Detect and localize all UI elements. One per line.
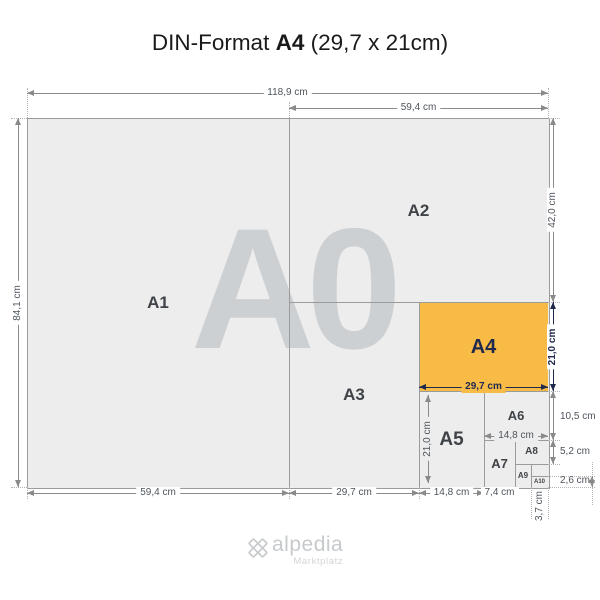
- dim-label: 21,0 cm: [547, 324, 559, 369]
- extension-line: [548, 487, 549, 519]
- format-label-a8: A8: [525, 447, 538, 457]
- dim-arrow: [550, 391, 556, 398]
- din-format-diagram: DIN-Format A4 (29,7 x 21cm) A1A2A3A4A5A6…: [0, 0, 600, 600]
- dim-arrow: [484, 433, 491, 439]
- dim-label: 59,4 cm: [397, 102, 441, 114]
- dim-label: 10,5 cm: [560, 412, 596, 422]
- extension-line: [531, 487, 532, 519]
- format-label-a4: A4: [471, 337, 497, 357]
- format-label-a10: A10: [534, 479, 545, 485]
- brand-tagline: Marktplatz: [272, 557, 343, 567]
- format-box-a8: A8: [515, 440, 548, 464]
- fold-line: [484, 391, 485, 487]
- format-box-a10: A10: [531, 476, 548, 487]
- dim-arrow: [541, 90, 548, 96]
- dim-arrow: [412, 490, 419, 496]
- dim-arrow: [289, 105, 296, 111]
- dim-arrow: [550, 295, 556, 302]
- dim-arrow: [425, 395, 431, 402]
- watermark-a0: A0: [191, 203, 394, 375]
- dim-label: 7,4 cm: [480, 487, 518, 499]
- dim-arrow: [419, 384, 426, 390]
- dim-arrow: [289, 490, 296, 496]
- extension-line: [548, 464, 560, 465]
- format-box-a4: A4: [419, 302, 548, 391]
- dim-label: 2,6 cm: [560, 476, 590, 486]
- format-label-a5: A5: [439, 430, 463, 449]
- brand-name: alpedia: [272, 534, 343, 556]
- dim-arrow: [27, 90, 34, 96]
- dim-arrow: [550, 384, 556, 391]
- dim-label: 118,9 cm: [263, 87, 311, 99]
- fold-line: [419, 302, 420, 487]
- format-box-a9: A9: [515, 464, 531, 487]
- dim-label: 42,0 cm: [547, 188, 559, 232]
- dim-arrow: [550, 118, 556, 125]
- extension-line: [11, 487, 27, 488]
- clover-icon: [247, 537, 269, 559]
- dim-arrow: [419, 490, 426, 496]
- format-label-a1: A1: [147, 294, 169, 311]
- extension-line: [548, 88, 549, 118]
- dim-arrow: [541, 105, 548, 111]
- dim-arrow: [541, 384, 548, 390]
- dim-arrow: [550, 433, 556, 440]
- extension-line: [548, 487, 595, 488]
- dim-label: 21,0 cm: [422, 417, 434, 461]
- dim-arrow: [550, 440, 556, 447]
- dim-label: 29,7 cm: [332, 487, 376, 499]
- dim-label: 84,1 cm: [12, 281, 24, 325]
- dim-arrow: [282, 490, 289, 496]
- brand-logo: alpedia Marktplatz: [247, 534, 343, 567]
- brand-text: alpedia Marktplatz: [272, 534, 343, 567]
- dim-arrow: [541, 433, 548, 439]
- dim-arrow: [550, 302, 556, 309]
- dim-label: 14,8 cm: [430, 487, 474, 499]
- dim-arrow: [15, 118, 21, 125]
- dim-label: 3,7 cm: [535, 491, 545, 521]
- dim-arrow: [425, 476, 431, 483]
- fold-line: [531, 476, 548, 477]
- format-label-a3: A3: [343, 386, 365, 403]
- format-label-a7: A7: [491, 457, 508, 470]
- dim-label: 5,2 cm: [560, 447, 590, 457]
- dim-arrow: [550, 457, 556, 464]
- dim-label: 59,4 cm: [136, 487, 180, 499]
- diagram-canvas: A1A2A3A4A5A6A7A8A9A10A0118,9 cm59,4 cm84…: [0, 0, 600, 600]
- format-box-a7: A7: [484, 440, 515, 487]
- format-label-a2: A2: [408, 202, 430, 219]
- dim-label: 14,8 cm: [494, 430, 538, 442]
- dim-arrow: [27, 490, 34, 496]
- dim-label: 29,7 cm: [461, 381, 506, 393]
- format-label-a6: A6: [508, 409, 525, 422]
- format-label-a9: A9: [518, 472, 528, 480]
- dim-arrow: [15, 480, 21, 487]
